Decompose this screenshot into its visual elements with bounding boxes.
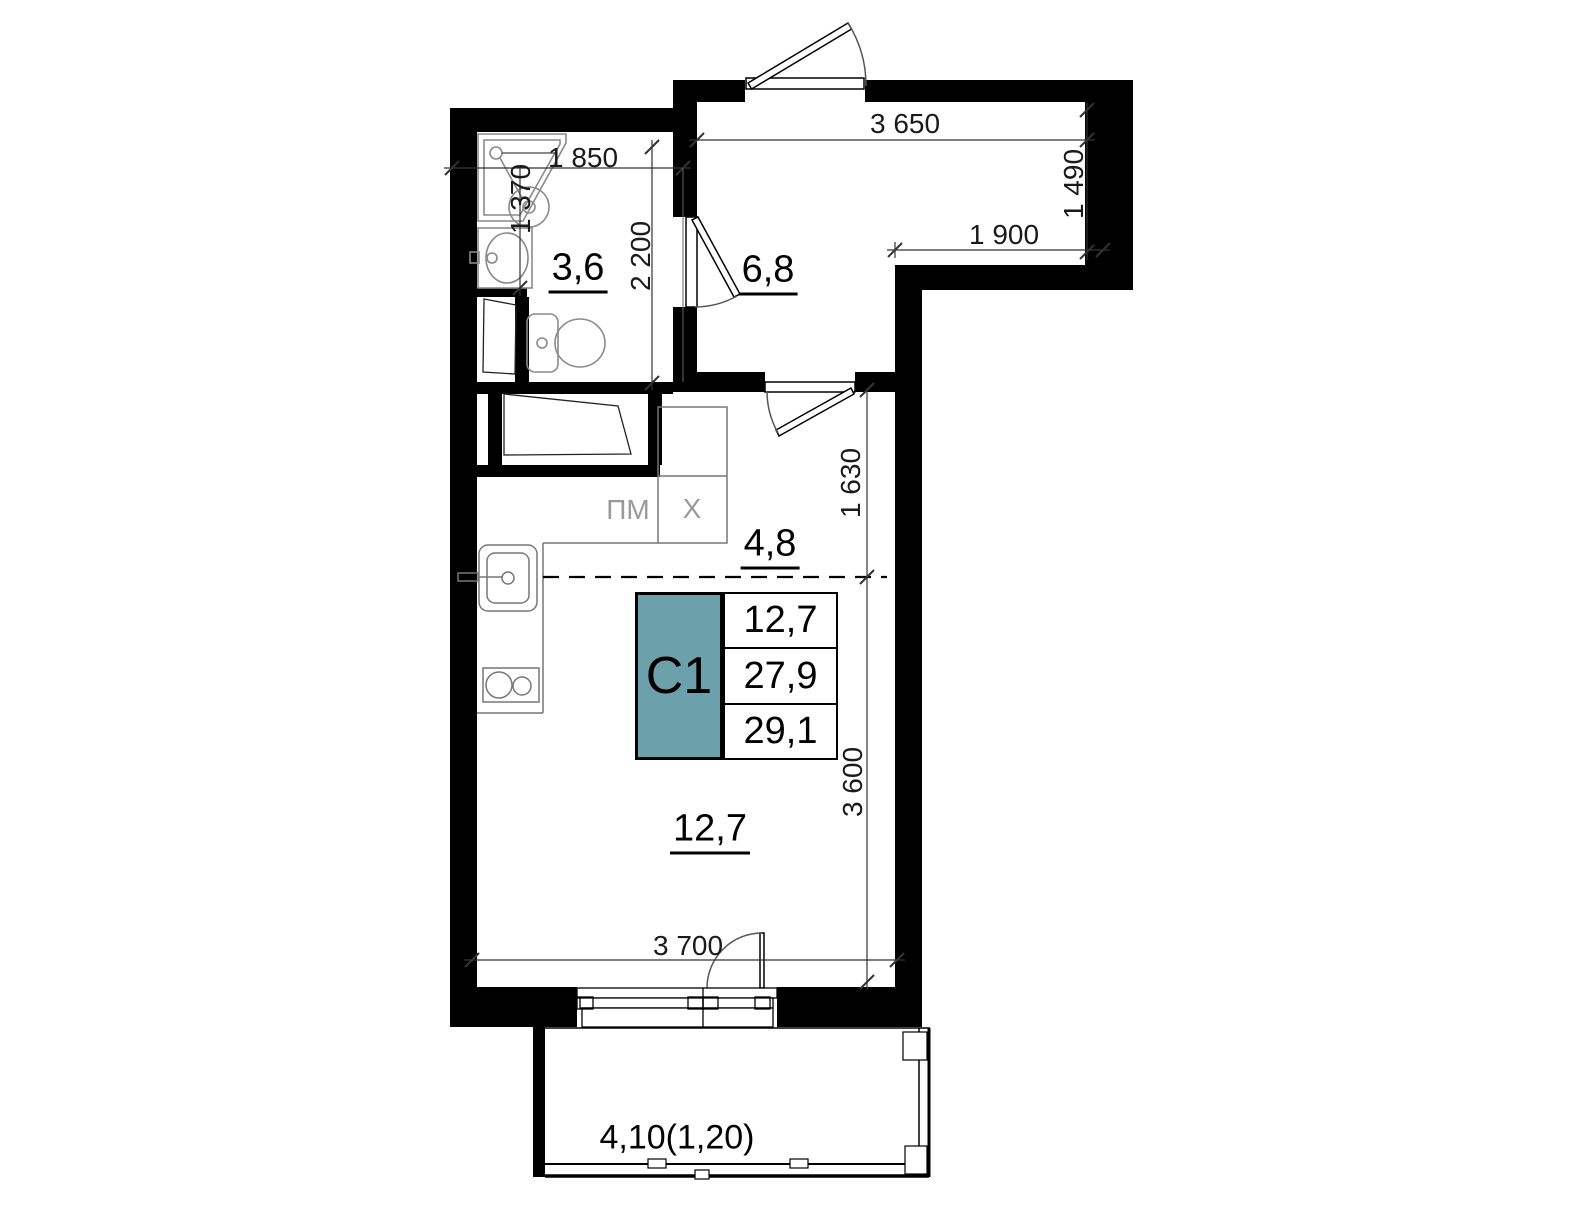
kitchen-door — [765, 382, 855, 436]
unit-area-living-cell: 12,7 — [723, 592, 838, 649]
room-label-bathroom: 3,6 — [549, 247, 608, 290]
dim-3650: 3 650 — [870, 108, 940, 140]
dim-1490: 1 490 — [1058, 149, 1090, 219]
room-label-balcony: 4,10(1,20) — [600, 1119, 755, 1158]
balcony-window-assembly — [577, 988, 777, 1027]
shaft-symbol — [483, 299, 516, 374]
toilet-symbol — [527, 314, 605, 372]
unit-area-no-balcony-cell: 27,9 — [723, 647, 838, 705]
dim-2200: 2 200 — [625, 221, 657, 291]
dim-3600: 3 600 — [837, 747, 869, 817]
duct-niche-symbol — [504, 394, 631, 455]
dim-1630: 1 630 — [835, 448, 867, 518]
bathroom-door — [686, 217, 740, 307]
dim-3700: 3 700 — [653, 930, 723, 962]
dishwasher-label: ПМ — [606, 494, 649, 526]
washbasin-symbol — [470, 228, 532, 288]
unit-area-total-cell: 29,1 — [723, 703, 838, 760]
room-label-living: 12,7 — [670, 808, 750, 851]
dim-1370: 1 370 — [505, 164, 537, 234]
dim-1900: 1 900 — [969, 219, 1039, 251]
entry-door — [746, 23, 866, 89]
fridge-label: X — [683, 493, 702, 525]
floor-plan: 1 850 1 370 2 200 3 650 1 490 1 900 1 63… — [0, 0, 1592, 1205]
room-label-kitchen: 4,8 — [741, 523, 800, 566]
unit-code-cell: C1 — [635, 592, 723, 760]
dim-1850: 1 850 — [548, 142, 618, 174]
cooktop-symbol — [483, 668, 539, 702]
room-label-hall: 6,8 — [739, 249, 798, 292]
